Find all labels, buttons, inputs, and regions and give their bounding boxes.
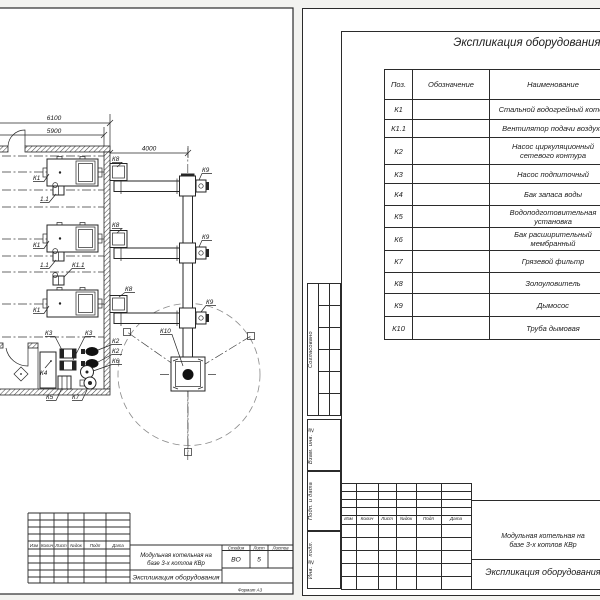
svg-text:Изм: Изм — [30, 543, 38, 548]
table-row: К8 Золоуловитель — [385, 273, 600, 294]
stage-value: ВО — [231, 557, 241, 564]
svg-text:Колич: Колич — [41, 543, 54, 548]
table-row: К2 Насос циркуляционный сетевого контура — [385, 138, 600, 165]
svg-text:К3: К3 — [45, 330, 53, 337]
svg-text:К2: К2 — [112, 338, 120, 345]
svg-text:К1: К1 — [33, 307, 40, 314]
dim-6100: 6100 — [47, 115, 62, 122]
left-sheet-frame — [0, 8, 293, 594]
table-row: К4 Бак запаса воды — [385, 184, 600, 206]
svg-text:К4: К4 — [40, 370, 48, 377]
frame-left-line — [341, 31, 342, 589]
table-row: К6 Бак расширительный мембранный — [385, 228, 600, 251]
svg-text:К8: К8 — [112, 222, 120, 229]
approved-label: Согласовано — [308, 284, 318, 415]
frame-top-line — [341, 31, 600, 32]
svg-text:К3: К3 — [85, 330, 93, 337]
svg-text:Подп: Подп — [90, 543, 101, 548]
svg-text:Стадия: Стадия — [228, 546, 245, 551]
table-row: К3 Насос подпиточный — [385, 165, 600, 184]
pump-k3-a — [60, 349, 76, 358]
pump-k3-b — [60, 361, 76, 370]
equipment-list-sheet: Согласовано Взам. инв. № Подп. и дата Ин… — [302, 8, 600, 596]
doc-title: Экспликация оборудования — [133, 574, 220, 582]
table-row: К5 Водоподготовительная установка — [385, 206, 600, 228]
svg-text:№док: №док — [70, 543, 83, 548]
table-row: К7 Грязевой фильтр — [385, 251, 600, 273]
svg-text:Лист: Лист — [252, 546, 265, 551]
table-row: К1.1 Вентилятор подачи воздуха — [385, 120, 600, 138]
svg-text:1.1: 1.1 — [40, 196, 49, 203]
svg-text:К9: К9 — [206, 299, 214, 306]
svg-text:К8: К8 — [112, 156, 120, 163]
svg-text:К8: К8 — [125, 286, 133, 293]
table-row: К1 Стальной водогрейный котел — [385, 100, 600, 120]
equipment-list-title: Экспликация оборудования — [421, 37, 600, 49]
project-title-line1: Модульная котельная на — [140, 553, 212, 559]
svg-text:Лист: Лист — [54, 543, 67, 548]
svg-text:К1.1: К1.1 — [72, 262, 84, 269]
svg-text:К6: К6 — [112, 358, 120, 365]
boilers — [43, 157, 102, 318]
project-title-line2: базе 3-х котлов КВр — [147, 561, 205, 567]
dim-4000: 4000 — [142, 146, 157, 153]
dim-5900: 5900 — [47, 128, 62, 135]
table-header-row: Поз. Обозначение Наименование — [385, 70, 600, 100]
svg-text:К9: К9 — [202, 234, 210, 241]
inv-orig-cell: Инв. № подл. — [307, 531, 341, 589]
table-row: К10 Труба дымовая — [385, 317, 600, 340]
replace-inv-cell: Взам. инв. № — [307, 419, 341, 471]
sheet-number: 5 — [257, 557, 261, 564]
svg-text:К2: К2 — [112, 348, 120, 355]
svg-text:Листов: Листов — [272, 546, 290, 551]
project-title-line2: базе 3-х котлов КВр — [471, 542, 600, 549]
svg-text:К1: К1 — [33, 175, 40, 182]
svg-text:К5: К5 — [46, 394, 54, 401]
svg-text:К1: К1 — [33, 242, 40, 249]
sign-date-cell: Подп. и дата — [307, 471, 341, 531]
table-row: К9 Дымосос — [385, 294, 600, 317]
svg-text:1.1: 1.1 — [40, 262, 49, 269]
frame-bottom-line — [341, 589, 600, 590]
approved-block: Согласовано — [307, 283, 341, 416]
expansion-tank-k6 — [81, 366, 94, 379]
svg-text:К10: К10 — [160, 328, 171, 335]
wtu-k5 — [58, 376, 71, 389]
project-title-line1: Модульная котельная на — [471, 533, 600, 540]
format-note: Формат А3 — [238, 588, 263, 593]
svg-text:К7: К7 — [72, 394, 80, 401]
chimney — [171, 357, 205, 391]
equipment-table: Поз. Обозначение Наименование К1 Стально… — [384, 69, 600, 340]
drawing-viewer-canvas: { "colors": {"line": "#262626", "paper":… — [0, 0, 600, 600]
svg-text:Дата: Дата — [111, 543, 124, 548]
doc-title: Экспликация оборудования — [471, 567, 600, 577]
svg-text:К9: К9 — [202, 167, 210, 174]
